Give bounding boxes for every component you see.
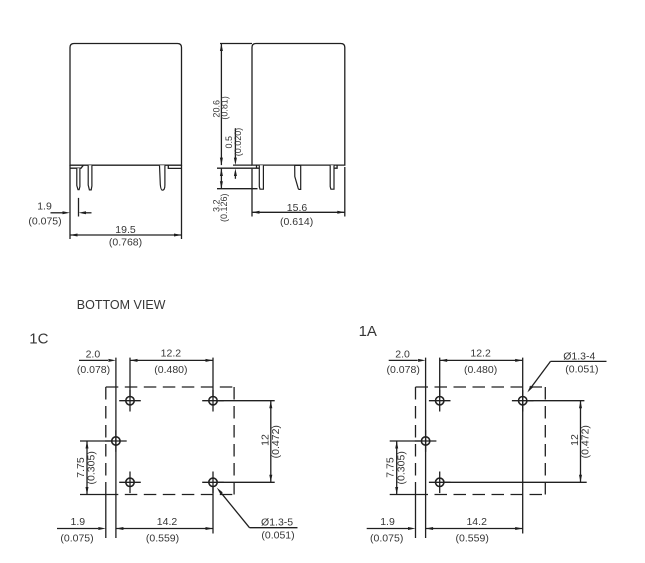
svg-text:(0.559): (0.559) [146,532,179,544]
svg-text:2.0: 2.0 [86,348,101,360]
svg-text:(0.075): (0.075) [370,532,403,544]
svg-text:(0.020): (0.020) [233,128,243,157]
svg-text:Ø1.3-5: Ø1.3-5 [261,516,293,528]
svg-text:1.9: 1.9 [37,201,52,213]
svg-text:BOTTOM VIEW: BOTTOM VIEW [77,298,166,312]
svg-text:19.5: 19.5 [115,224,136,236]
svg-text:(0.81): (0.81) [220,96,230,120]
svg-text:(0.078): (0.078) [387,364,420,376]
svg-text:14.2: 14.2 [157,516,178,528]
svg-text:(0.126): (0.126) [219,193,229,222]
svg-text:15.6: 15.6 [287,202,308,214]
svg-text:(0.768): (0.768) [109,237,142,249]
svg-text:(0.614): (0.614) [280,216,313,228]
svg-text:(0.075): (0.075) [60,532,93,544]
svg-text:12.2: 12.2 [470,348,491,360]
svg-text:(0.472): (0.472) [270,425,282,458]
svg-text:(0.472): (0.472) [580,425,592,458]
svg-text:1.9: 1.9 [380,516,395,528]
svg-text:(0.305): (0.305) [86,451,98,484]
svg-text:(0.559): (0.559) [456,532,489,544]
svg-text:(0.051): (0.051) [565,363,598,375]
svg-text:(0.051): (0.051) [261,529,294,541]
svg-text:2.0: 2.0 [395,348,410,360]
svg-text:12.2: 12.2 [161,348,182,360]
svg-text:(0.480): (0.480) [464,364,497,376]
svg-text:(0.075): (0.075) [28,216,61,228]
svg-text:(0.480): (0.480) [154,364,187,376]
svg-text:1C: 1C [29,330,48,347]
svg-text:Ø1.3-4: Ø1.3-4 [563,351,595,363]
svg-text:(0.078): (0.078) [77,364,110,376]
svg-text:14.2: 14.2 [466,516,487,528]
svg-text:1A: 1A [359,323,377,340]
svg-text:(0.305): (0.305) [395,451,407,484]
svg-text:1.9: 1.9 [70,516,85,528]
